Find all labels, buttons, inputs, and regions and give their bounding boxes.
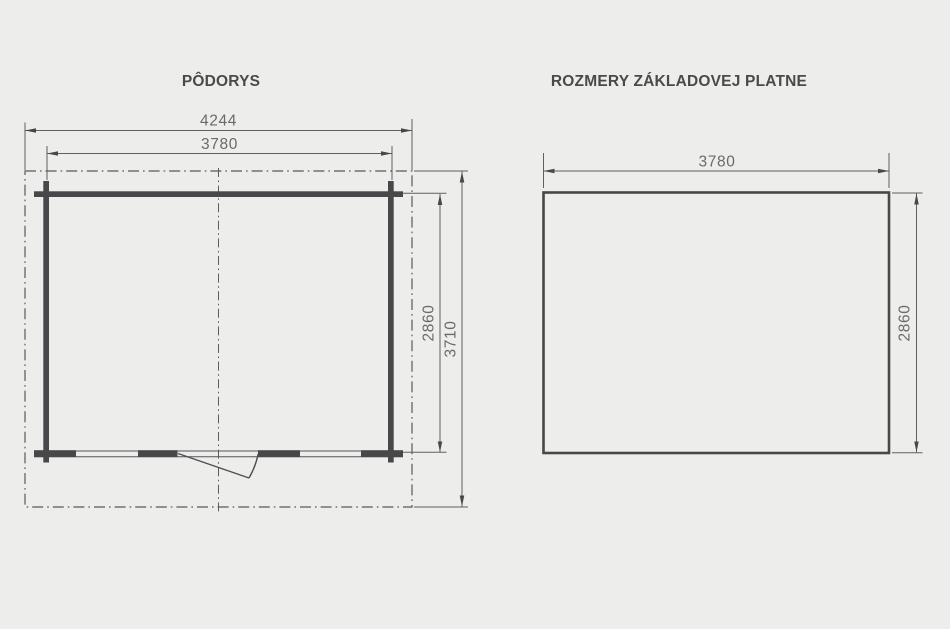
dim-label-roof-depth: 3710 [443, 321, 460, 358]
wall-front-segment [258, 450, 300, 457]
dim-label-roof-width: 4244 [200, 113, 237, 130]
base-plate-drawing: ROZMERY ZÁKLADOVEJ PLATNE 3780 2860 [544, 73, 923, 453]
floor-plan-title: PÔDORYS [182, 72, 260, 90]
dim-wall-depth: 2860 [403, 193, 447, 452]
wall-front-segment [361, 450, 403, 457]
floor-plan-drawing: PÔDORYS 4244 3780 [25, 72, 468, 513]
dim-label-plate-depth: 2860 [897, 305, 914, 342]
dim-label-wall-depth: 2860 [421, 305, 438, 342]
base-plate-title: ROZMERY ZÁKLADOVEJ PLATNE [551, 73, 807, 90]
wall-front-segment [34, 450, 76, 457]
wall-right [388, 181, 394, 463]
dim-plate-depth: 2860 [892, 193, 923, 453]
technical-drawing-canvas: PÔDORYS 4244 3780 [0, 0, 950, 629]
wall-front-segment [138, 450, 178, 457]
dim-plate-width: 3780 [544, 153, 890, 188]
dim-label-wall-width: 3780 [201, 136, 238, 153]
dim-label-plate-width: 3780 [699, 154, 736, 171]
dim-wall-width: 3780 [47, 136, 392, 180]
wall-left [43, 181, 49, 463]
door-swing-arc [249, 454, 258, 478]
base-plate-outline [544, 193, 890, 454]
wall-back [34, 191, 403, 197]
